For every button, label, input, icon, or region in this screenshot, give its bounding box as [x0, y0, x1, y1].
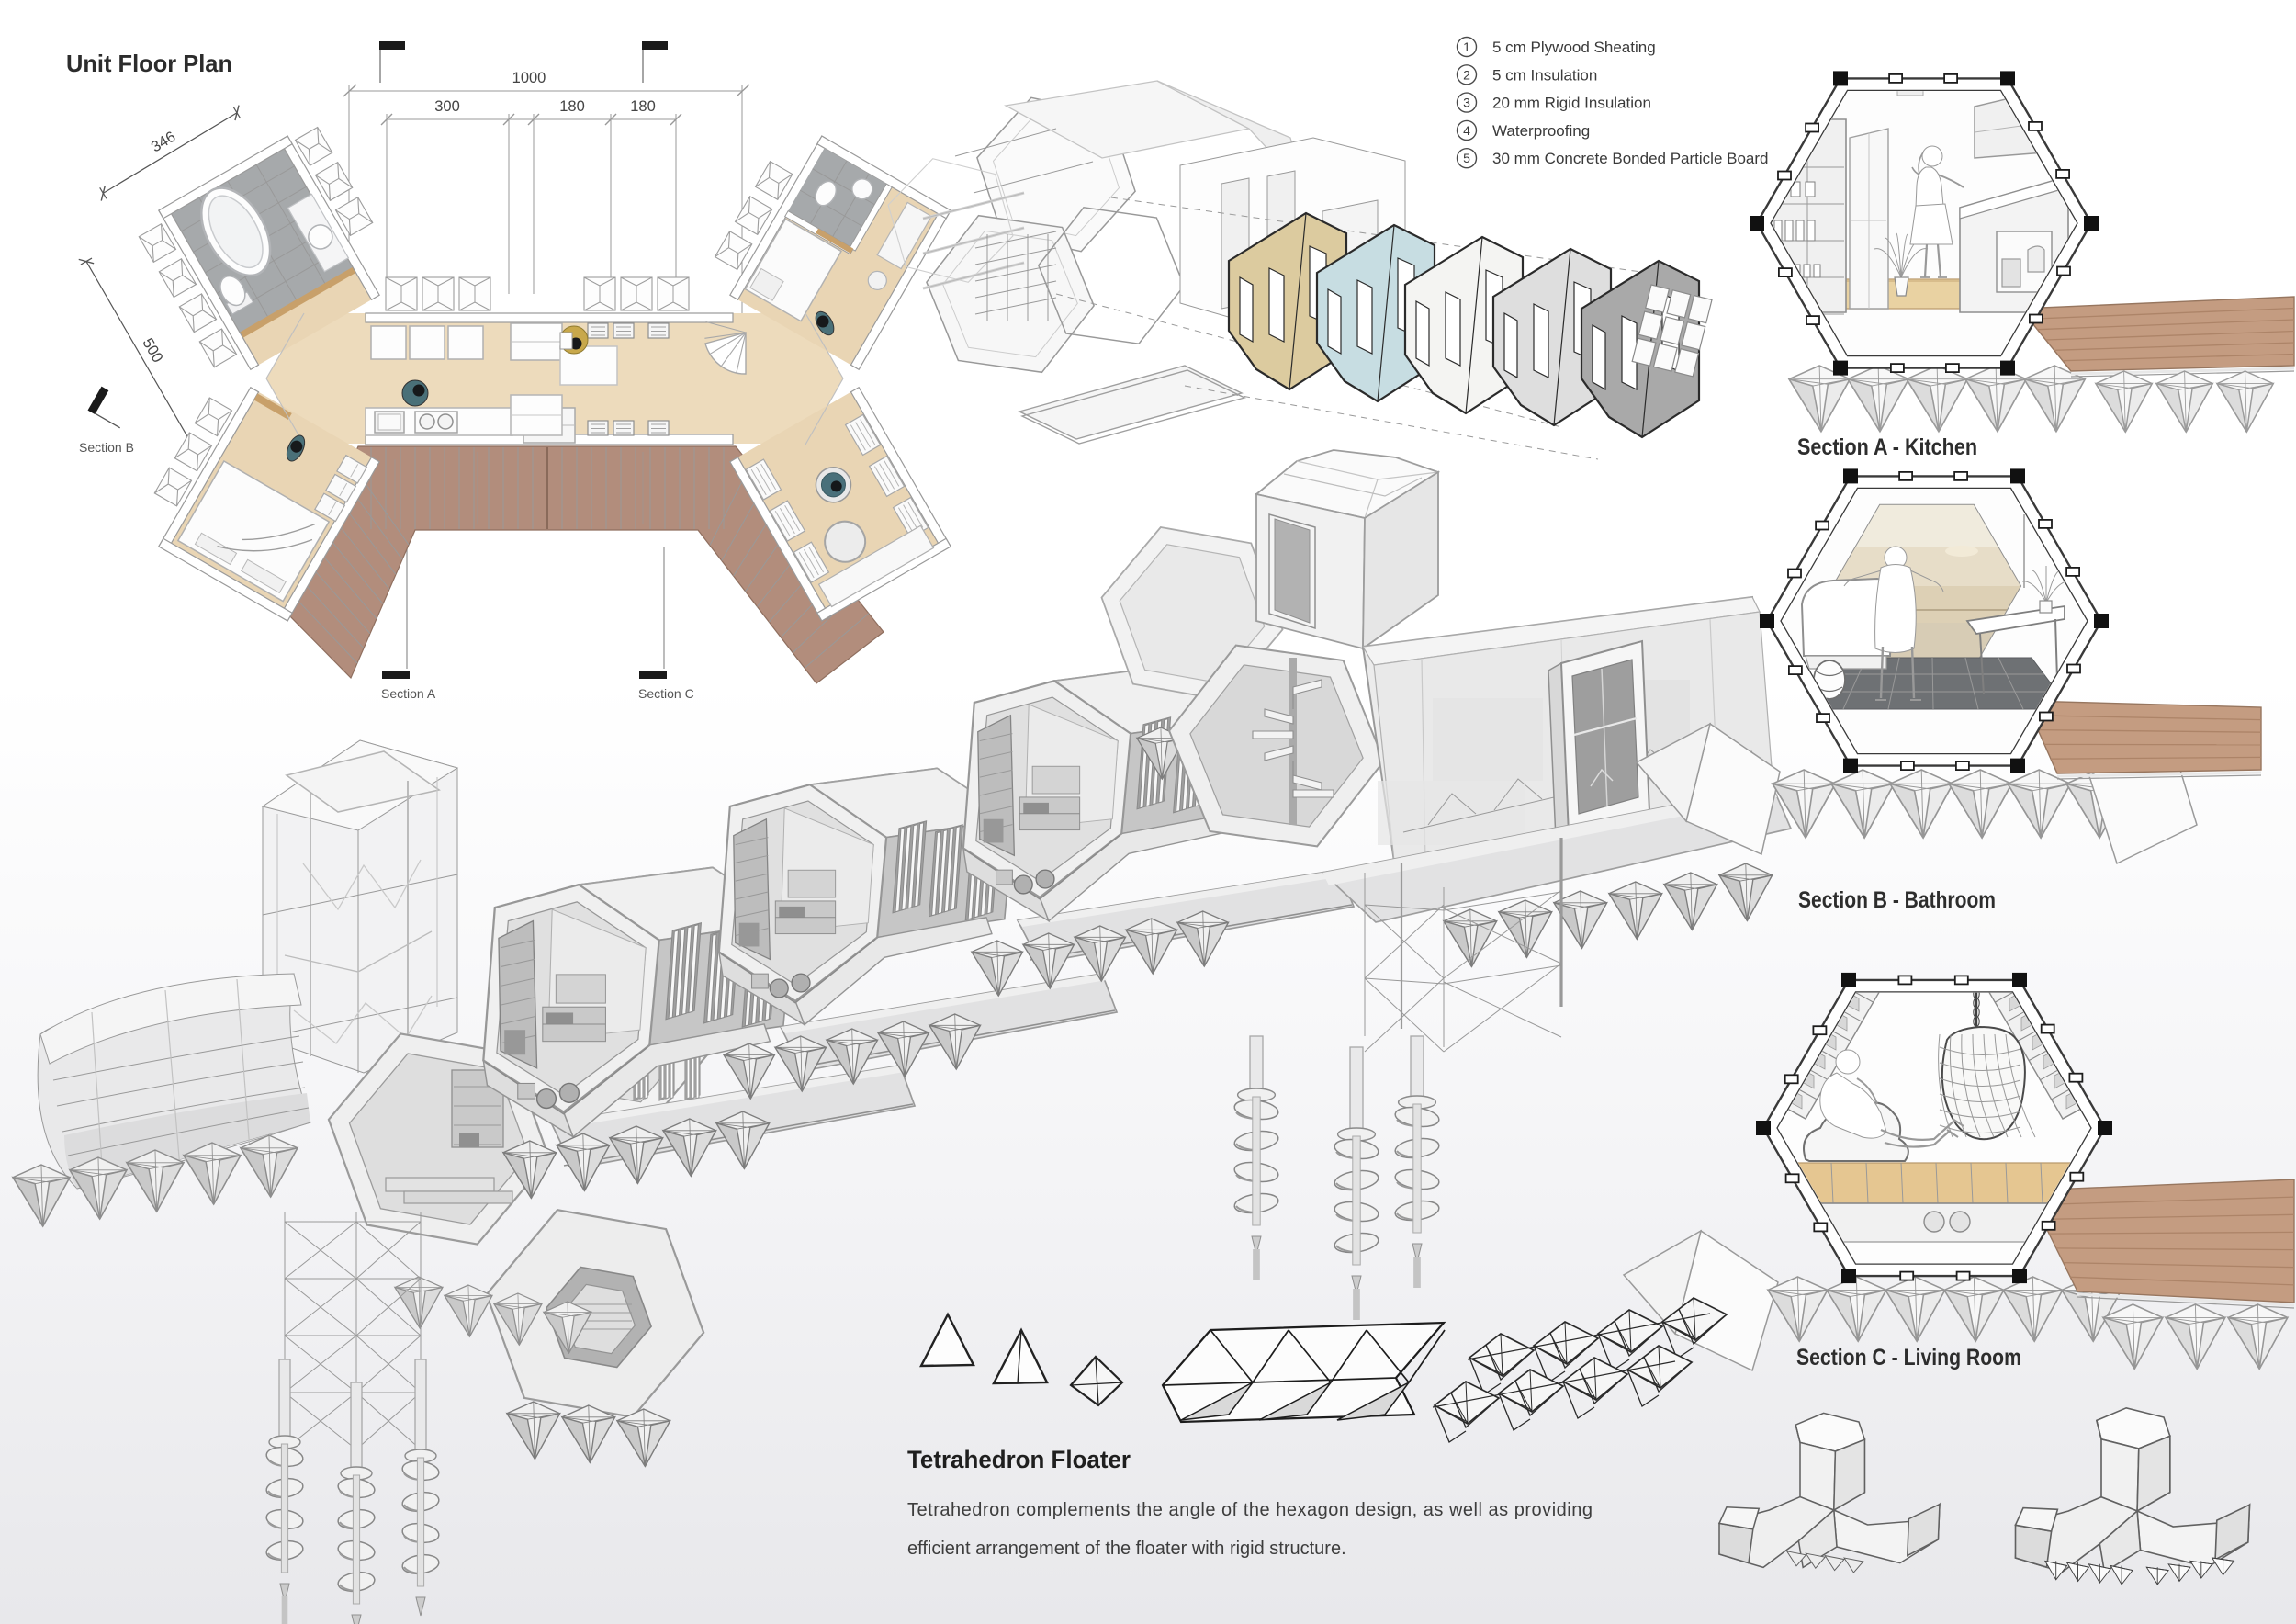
svg-text:30 mm Concrete Bonded Particle: 30 mm Concrete Bonded Particle Board [1492, 150, 1769, 167]
svg-text:1: 1 [1463, 39, 1470, 54]
svg-text:Section A - Kitchen: Section A - Kitchen [1797, 434, 1977, 460]
svg-text:Section C - Living Room: Section C - Living Room [1796, 1345, 2021, 1370]
svg-text:Section B: Section B [79, 440, 134, 455]
svg-text:Section C: Section C [638, 686, 694, 701]
svg-text:Waterproofing: Waterproofing [1492, 122, 1590, 140]
svg-text:5 cm Plywood Sheating: 5 cm Plywood Sheating [1492, 39, 1656, 56]
svg-text:20 mm Rigid Insulation: 20 mm Rigid Insulation [1492, 95, 1651, 112]
svg-text:3: 3 [1463, 96, 1470, 110]
svg-text:180: 180 [559, 98, 585, 115]
svg-text:1000: 1000 [512, 70, 546, 86]
svg-text:Tetrahedron complements the an: Tetrahedron complements the angle of the… [907, 1500, 1593, 1520]
svg-text:2: 2 [1463, 67, 1470, 82]
svg-text:Section A: Section A [381, 686, 436, 701]
svg-text:Tetrahedron Floater: Tetrahedron Floater [907, 1446, 1131, 1473]
svg-text:180: 180 [630, 98, 656, 115]
svg-text:5: 5 [1463, 151, 1470, 165]
svg-text:Section B - Bathroom: Section B - Bathroom [1798, 887, 1996, 913]
svg-text:5 cm Insulation: 5 cm Insulation [1492, 66, 1597, 84]
svg-text:4: 4 [1463, 123, 1470, 138]
svg-text:efficient arrangement of the f: efficient arrangement of the floater wit… [907, 1539, 1346, 1559]
svg-text:346: 346 [149, 129, 179, 156]
svg-text:300: 300 [434, 98, 460, 115]
svg-text:500: 500 [139, 335, 165, 366]
svg-text:Unit Floor Plan: Unit Floor Plan [66, 50, 232, 77]
